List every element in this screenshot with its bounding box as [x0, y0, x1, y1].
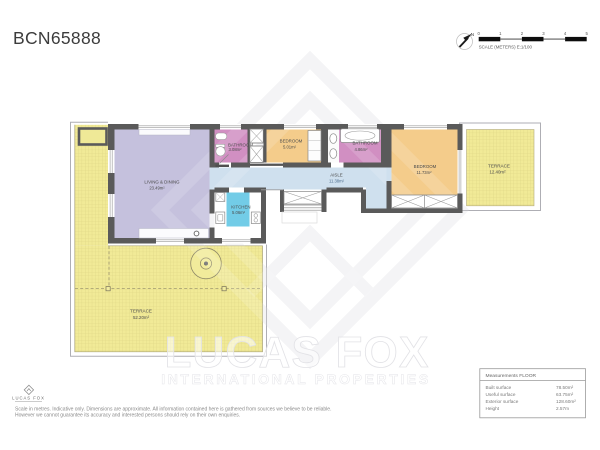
svg-text:11.73m²: 11.73m²	[416, 170, 432, 175]
svg-text:12.40m²: 12.40m²	[489, 169, 506, 174]
svg-text:Measurements FLOOR: Measurements FLOOR	[486, 373, 537, 379]
svg-text:Exterior surface: Exterior surface	[486, 399, 519, 404]
svg-text:Useful surface: Useful surface	[486, 392, 516, 397]
svg-text:However we cannot guarantee it: However we cannot guarantee its accuracy…	[15, 412, 240, 418]
svg-text:2.57m: 2.57m	[556, 406, 569, 411]
svg-text:LUCAS FOX: LUCAS FOX	[164, 328, 429, 377]
svg-text:78.50m²: 78.50m²	[556, 385, 574, 390]
svg-text:KITCHEN: KITCHEN	[231, 205, 250, 210]
svg-text:LIVING & DINING: LIVING & DINING	[144, 180, 180, 185]
svg-text:TERRACE: TERRACE	[130, 309, 152, 314]
svg-text:128.60m²: 128.60m²	[556, 399, 576, 404]
svg-text:52.20m²: 52.20m²	[133, 315, 150, 320]
svg-text:N: N	[471, 32, 474, 37]
svg-text:Height: Height	[486, 406, 500, 411]
svg-text:TERRACE: TERRACE	[488, 164, 510, 169]
svg-text:LUCAS FOX: LUCAS FOX	[12, 395, 45, 400]
svg-text:BATHROOM: BATHROOM	[352, 141, 377, 146]
svg-text:BCN65888: BCN65888	[13, 28, 101, 48]
svg-text:63.75m²: 63.75m²	[556, 392, 574, 397]
svg-text:11.38m²: 11.38m²	[329, 179, 345, 184]
svg-text:BEDROOM: BEDROOM	[414, 164, 437, 169]
svg-text:BEDROOM: BEDROOM	[280, 139, 303, 144]
svg-text:4.86m²: 4.86m²	[354, 147, 368, 152]
svg-text:INTERNATIONAL PROPERTIES: INTERNATIONAL PROPERTIES	[161, 371, 431, 387]
svg-text:AISLE: AISLE	[330, 173, 343, 178]
svg-text:23.49m²: 23.49m²	[149, 185, 165, 190]
svg-text:Built surface: Built surface	[486, 385, 512, 390]
svg-text:SCALE (METERS) E:1/100: SCALE (METERS) E:1/100	[479, 44, 533, 49]
svg-text:5.06m²: 5.06m²	[232, 210, 246, 215]
svg-text:5.01m²: 5.01m²	[283, 145, 297, 150]
svg-text:3.08m²: 3.08m²	[229, 147, 243, 152]
svg-text:Scale in metres. Indicative on: Scale in metres. Indicative only. Dimens…	[15, 406, 331, 412]
